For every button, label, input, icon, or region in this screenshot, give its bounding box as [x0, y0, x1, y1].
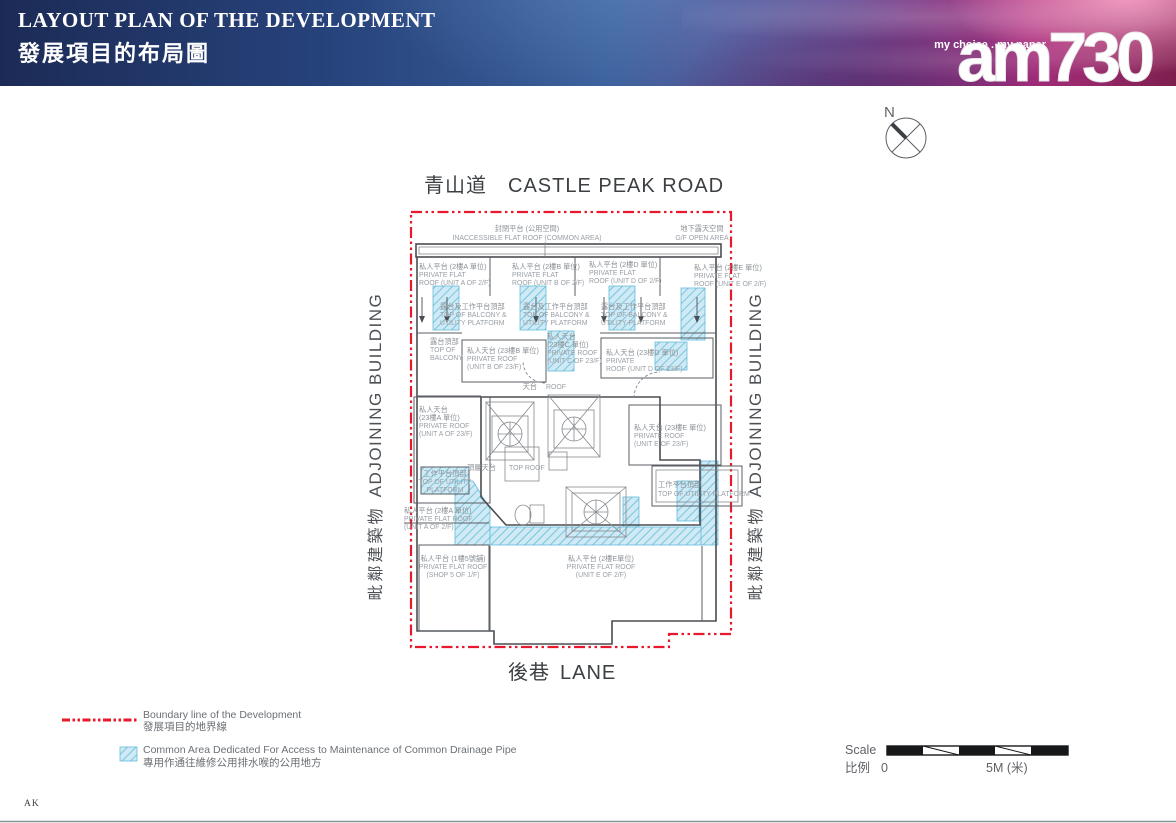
label-balcony-utility-1: TOP OF BALCONY & [440, 312, 507, 319]
door-swing [523, 361, 545, 383]
label-pr-c23f: PRIVATE ROOF [547, 350, 597, 357]
label-pr-a23f: (UNIT A OF 23/F) [419, 431, 472, 438]
am730-logo: am730 [957, 22, 1150, 92]
label-pfr-a2f-top: ROOF (UNIT A OF 2/F) [419, 280, 490, 287]
label-pr-e23f: (UNIT E OF 23/F) [634, 441, 688, 448]
legend-common-zh: 專用作通往維修公用排水喉的公用地方 [143, 756, 322, 769]
label-top-balcony: BALCONY [430, 355, 463, 362]
label-balcony-utility-3: UTILITY PLATFORM [601, 320, 666, 327]
label-pfr-b2f: 私人平台 (2樓B 單位) [512, 262, 580, 271]
scale-bar: Scale 比例 0 5M (米) [845, 743, 1068, 775]
north-arrow-icon: N [884, 104, 926, 158]
label-roof-en: ROOF [546, 384, 566, 391]
label-utility-left: PLATFORM [426, 487, 463, 494]
label-gf-open-en: G/F OPEN AREA [675, 235, 729, 242]
label-pfr-d2f: 私人平台 (2樓D 單位) [589, 260, 657, 269]
label-pr-d23f: PRIVATE [606, 358, 635, 365]
label-pr-b23f: (UNIT B OF 23/F) [467, 364, 521, 371]
label-pr-a23f: (23樓A 單位) [419, 413, 460, 422]
scale-zero: 0 [881, 761, 888, 775]
water-closet-symbol [515, 505, 544, 525]
label-utility-left: 工作平台頂部 [423, 469, 466, 478]
label-utility-right: TOP OF UTILITY PLATFORM [658, 491, 750, 498]
label-pfr-b2f: ROOF (UNIT B OF 2/F) [512, 280, 584, 287]
label-top-balcony: 露台頂部 [430, 337, 459, 346]
road-bottom-zh: 後巷 [508, 661, 550, 684]
label-pfr-e2f-top: PRIVATE FLAT [694, 273, 741, 280]
adjoining-right-en: ADJOINING BUILDING [746, 293, 765, 498]
label-pfr-a2f-mid: 私人平台 (2樓A 單位) [404, 506, 472, 515]
legend: Boundary line of the Development 發展項目的地界… [62, 709, 517, 769]
label-pfr-b2f: PRIVATE FLAT [512, 272, 559, 279]
road-top-en: CASTLE PEAK ROAD [508, 175, 724, 197]
label-pfr-e2f-bottom: (UNIT E OF 2/F) [576, 572, 626, 579]
label-pr-b23f: PRIVATE ROOF [467, 356, 517, 363]
adjoining-left-zh: 毗鄰建築物 [367, 505, 385, 600]
label-pfr-a2f-mid: PRIVATE FLAT ROOF [404, 516, 472, 523]
label-balcony-utility-1: 露台及工作平台頂部 [440, 302, 505, 311]
label-balcony-utility-2: 露台及工作平台頂部 [523, 302, 588, 311]
layout-plan-drawing: N 青山道 CASTLE PEAK ROAD 後巷 LANE ADJOINING… [0, 0, 1176, 823]
label-pr-b23f: 私人天台 (23樓B 單位) [467, 346, 539, 355]
label-pr-e23f: 私人天台 (23樓E 單位) [634, 423, 706, 432]
scale-label-zh: 比例 [845, 761, 870, 775]
legend-common-en: Common Area Dedicated For Access to Main… [143, 744, 517, 756]
label-pfr-a2f-mid: (UNIT A OF 2/F) [404, 524, 454, 531]
label-inaccessible-zh: 封閉平台 (公用空間) [495, 224, 559, 233]
label-balcony-utility-1: UTILITY PLATFORM [440, 320, 505, 327]
footer-mark: AK [24, 799, 40, 809]
label-pfr-shop5: 私人平台 (1樓5號舖) [420, 554, 485, 563]
roof-opening [549, 452, 567, 470]
label-top-roof-en: TOP ROOF [509, 465, 545, 472]
label-pfr-e2f-top: ROOF (UNIT E OF 2/F) [694, 281, 766, 288]
label-top-balcony: TOP OF [430, 347, 455, 354]
label-pfr-e2f-bottom: 私人平台 (2樓E單位) [568, 554, 634, 563]
label-balcony-utility-3: 露台及工作平台頂部 [601, 302, 666, 311]
label-roof-zh: 天台 [523, 382, 537, 391]
label-utility-left: TOP OF UTILITY [419, 479, 472, 486]
adjoining-left-en: ADJOINING BUILDING [366, 293, 385, 498]
label-pr-c23f: (23樓C 單位) [547, 340, 589, 349]
lift-symbol [486, 402, 534, 460]
road-top-zh: 青山道 [424, 174, 487, 197]
lift-symbol [548, 395, 600, 457]
lift-plant-symbols [486, 395, 626, 537]
label-balcony-utility-2: UTILITY PLATFORM [523, 320, 588, 327]
label-pfr-d2f: ROOF (UNIT D OF 2/F) [589, 278, 662, 285]
label-pfr-e2f-bottom: PRIVATE FLAT ROOF [567, 564, 635, 571]
label-pr-a23f: PRIVATE ROOF [419, 423, 469, 430]
label-top-roof-zh: 頂層天台 [467, 463, 496, 472]
label-pr-e23f: PRIVATE ROOF [634, 433, 684, 440]
label-inaccessible-en: INACCESSIBLE FLAT ROOF (COMMON AREA) [452, 235, 601, 242]
label-pfr-d2f: PRIVATE FLAT [589, 270, 636, 277]
adjoining-right-zh: 毗鄰建築物 [747, 505, 765, 600]
legend-boundary-en: Boundary line of the Development [143, 709, 301, 721]
label-balcony-utility-2: TOP OF BALCONY & [523, 312, 590, 319]
label-pfr-a2f-top: PRIVATE FLAT [419, 272, 466, 279]
road-bottom-en: LANE [560, 662, 616, 684]
label-pfr-shop5: (SHOP 5 OF 1/F) [426, 572, 479, 579]
label-pr-c23f: (UNIT C OF 23/F) [547, 358, 602, 365]
legend-boundary-zh: 發展項目的地界線 [143, 720, 227, 733]
page: LAYOUT PLAN OF THE DEVELOPMENT 發展項目的布局圖 … [0, 0, 1176, 823]
north-label: N [884, 104, 895, 121]
label-gf-open-zh: 地下露天空間 [680, 224, 723, 233]
label-pfr-a2f-top: 私人平台 (2樓A 單位) [419, 262, 487, 271]
scale-label-en: Scale [845, 743, 876, 757]
label-pr-d23f: ROOF (UNIT D OF 23/F) [606, 366, 682, 373]
scale-max: 5M (米) [986, 761, 1028, 775]
label-pfr-e2f-top: 私人平台 (2樓E 單位) [694, 263, 762, 272]
label-balcony-utility-3: TOP OF BALCONY & [601, 312, 668, 319]
door-swing [634, 372, 660, 398]
label-pr-d23f: 私人天台 (23樓D 單位) [606, 348, 678, 357]
legend-hatch-sample [120, 747, 137, 761]
label-utility-right: 工作平台頂部 [658, 480, 701, 489]
label-pfr-shop5: PRIVATE FLAT ROOF [419, 564, 487, 571]
